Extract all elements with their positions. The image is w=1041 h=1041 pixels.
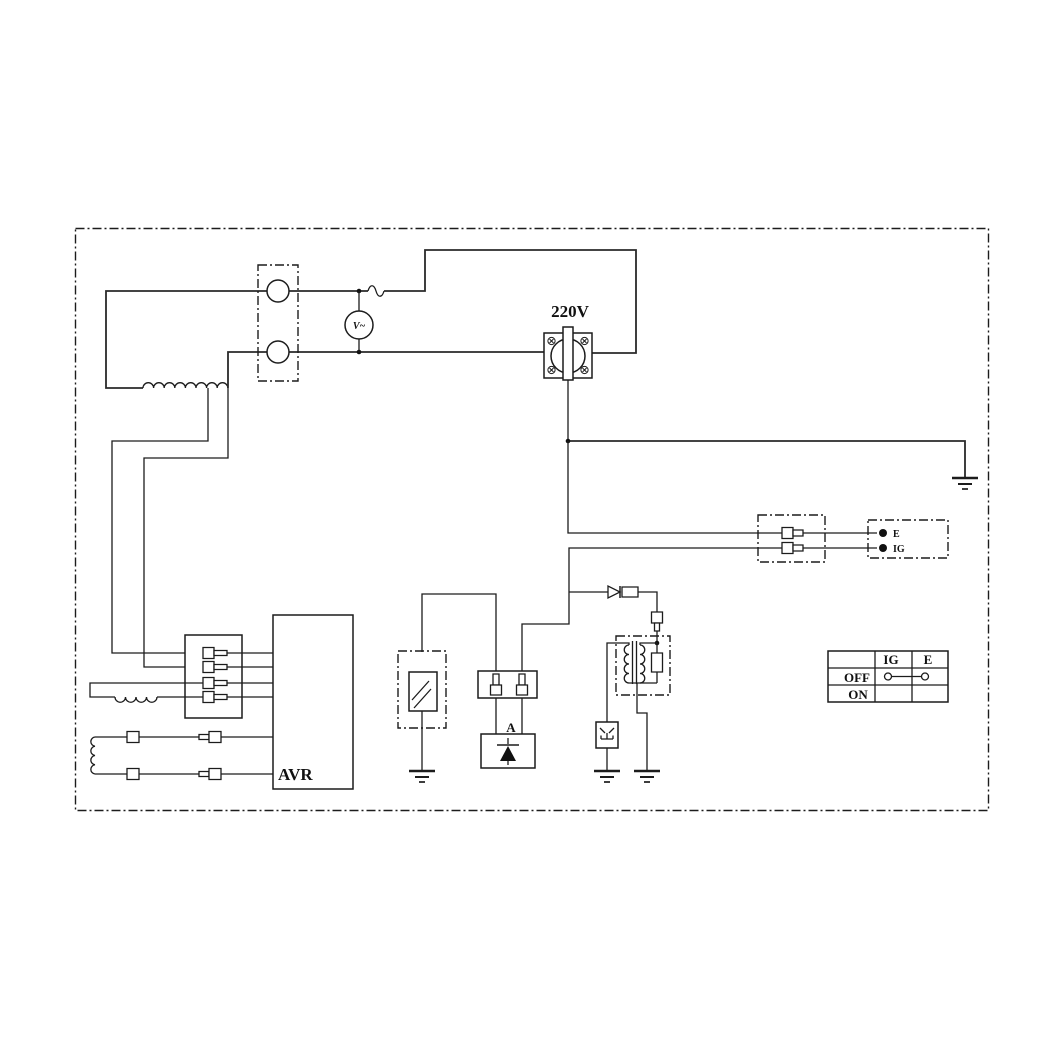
ignition-circuit bbox=[594, 586, 670, 782]
primary-winding bbox=[624, 645, 629, 683]
main-winding-coil bbox=[143, 383, 228, 388]
generator-wiring-diagram: V~ 220V E IG bbox=[0, 0, 1041, 1041]
terminal-ig-dot bbox=[879, 544, 887, 552]
diode-unit-a: A bbox=[478, 671, 537, 768]
engine-switch-table: IG E OFF ON bbox=[828, 651, 948, 702]
diagram-border bbox=[76, 229, 989, 811]
outlet-220v: 220V bbox=[544, 302, 592, 441]
fuse-icon bbox=[368, 286, 384, 297]
voltmeter: V~ bbox=[345, 291, 373, 352]
terminal-e-label: E bbox=[893, 529, 900, 540]
coil-resistor bbox=[652, 653, 663, 672]
rotor-winding bbox=[91, 732, 273, 780]
schematic-svg: V~ 220V E IG bbox=[0, 0, 1041, 1041]
diode-unit-label: A bbox=[506, 720, 516, 735]
terminal-ig-label: IG bbox=[893, 544, 905, 555]
ring-terminal-top bbox=[267, 280, 289, 302]
terminal-e-dot bbox=[879, 529, 887, 537]
secondary-winding bbox=[640, 645, 645, 683]
outlet-voltage-label: 220V bbox=[551, 302, 590, 321]
engine-harness: E IG bbox=[522, 441, 948, 674]
coil-core bbox=[633, 641, 637, 684]
table-row-off: OFF bbox=[844, 670, 870, 685]
table-row-on: ON bbox=[848, 687, 868, 702]
diode-icon bbox=[608, 586, 620, 598]
terminal-block-e-ig bbox=[868, 520, 948, 558]
table-header-e: E bbox=[924, 652, 933, 667]
lamp-body bbox=[409, 672, 437, 711]
resistor bbox=[622, 587, 638, 597]
outlet-slot bbox=[563, 327, 573, 380]
ring-terminal-bottom bbox=[267, 341, 289, 363]
avr-box bbox=[273, 615, 353, 789]
avr-section: AVR bbox=[90, 615, 353, 789]
voltmeter-label: V~ bbox=[353, 321, 366, 332]
table-header-ig: IG bbox=[883, 652, 898, 667]
two-pin-connector bbox=[478, 671, 537, 698]
chassis-ground-right bbox=[566, 439, 978, 489]
avr-label: AVR bbox=[278, 765, 313, 784]
